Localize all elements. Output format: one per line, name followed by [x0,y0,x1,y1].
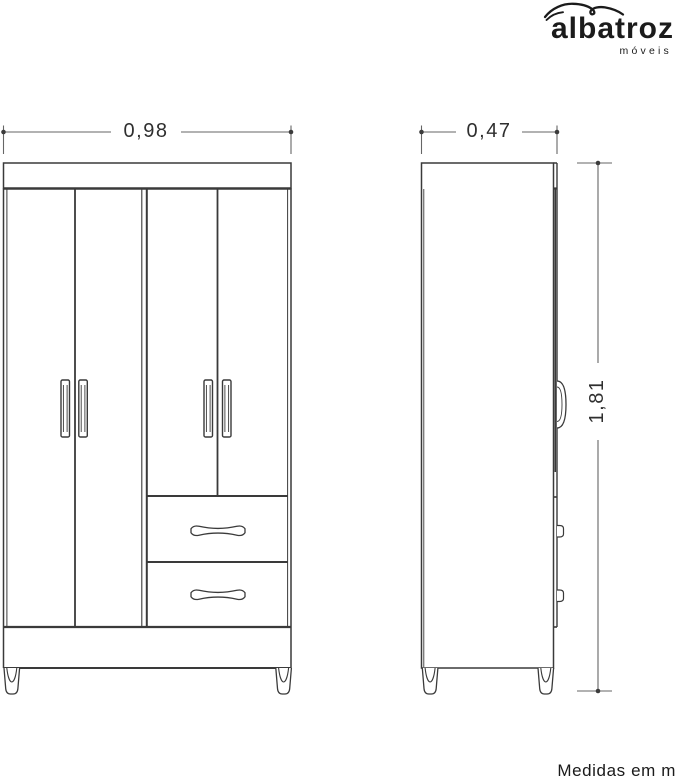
door-handle-icon [223,380,232,437]
front-width-dimension-label: 0,98 [121,121,172,141]
wardrobe-technical-drawing [0,0,679,783]
brand-name: albatroz [551,13,674,45]
side-view [422,163,567,694]
front-top-band [4,163,292,189]
drawer-handle-icon [191,526,245,536]
foot-front-left [4,668,20,694]
dimension-lines [1,126,612,694]
front-view [4,163,292,694]
foot-front-right [276,668,292,694]
brand-logo: albatroz móveis [551,13,674,57]
door-handle-icon [204,380,213,437]
units-note: Medidas em m [557,761,676,781]
drawer-handle-icon [191,590,245,600]
side-door-handle-icon [557,381,566,428]
door-handle-icon [79,380,88,437]
side-drawer-handle-icon [557,590,564,602]
foot-side-right [538,668,554,694]
side-depth-dimension-label: 0,47 [464,121,515,141]
technical-drawing-page: 0,98 0,47 1,81 albatroz móveis Medidas e… [0,0,679,783]
door-handle-icon [61,380,70,437]
foot-side-left [422,668,438,694]
side-drawer-handle-icon [557,526,564,538]
brand-subtitle: móveis [551,45,674,57]
side-carcass [422,163,554,668]
height-dimension-label: 1,81 [587,373,607,430]
